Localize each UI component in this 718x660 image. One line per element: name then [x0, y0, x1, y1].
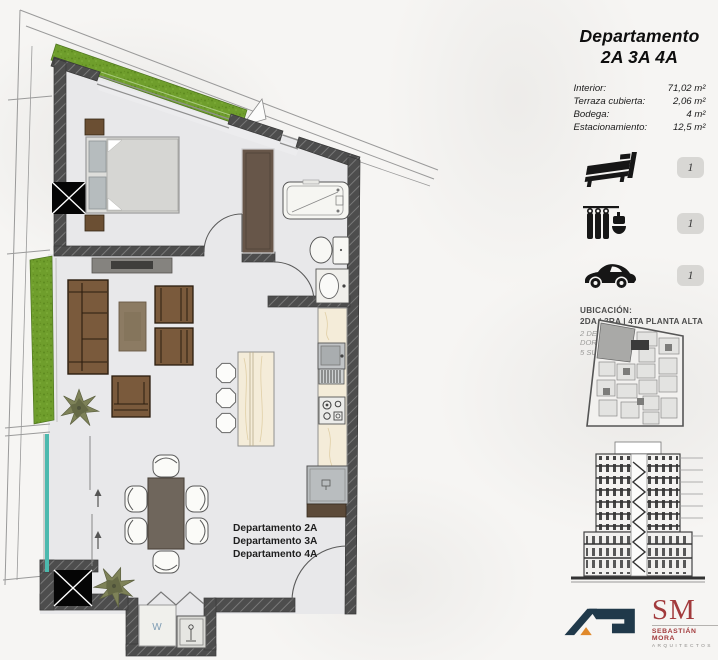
bedroom-count-badge: 1	[677, 157, 704, 178]
bathroom-count-badge: 1	[677, 213, 704, 234]
area-table: Interior: 71,02 m² Terraza cubierta: 2,0…	[574, 82, 706, 134]
kitchen-counter	[318, 308, 347, 470]
column	[54, 570, 92, 606]
sm-logo: SM SEBASTIÁN MORA ARQUITECTOS	[652, 596, 718, 649]
area-row-interior: Interior: 71,02 m²	[574, 82, 706, 95]
window-glass	[45, 434, 49, 572]
sm-monogram: SM	[652, 596, 718, 624]
parking-count-badge: 1	[677, 265, 704, 286]
sm-subtitle: ARQUITECTOS	[652, 644, 718, 649]
dining-table	[148, 478, 184, 549]
page-title: Departamento 2A 3A 4A	[561, 26, 718, 68]
amenities: 1 1	[561, 146, 718, 290]
floor-plan: W Departamento 2A Departamento 3A Depart…	[0, 0, 470, 660]
wardrobe	[242, 149, 274, 253]
area-label: Interior:	[574, 82, 607, 95]
nightstand	[85, 119, 104, 135]
area-label: Bodega:	[574, 108, 610, 121]
info-panel: Departamento 2A 3A 4A Interior: 71,02 m²…	[561, 0, 718, 660]
unit-label-2a: Departamento 2A	[233, 523, 318, 534]
laundry-sink	[177, 616, 206, 648]
area-row-bodega: Bodega: 4 m²	[574, 108, 706, 121]
area-label: Estacionamiento:	[574, 121, 648, 134]
stove	[319, 397, 345, 424]
unit-label-4a: Departamento 4A	[233, 549, 318, 560]
tv-console	[92, 258, 172, 273]
amenity-bathrooms: 1	[581, 202, 704, 244]
washer: W	[139, 605, 176, 646]
armchair	[155, 286, 193, 323]
kitchen-sink	[318, 343, 345, 384]
sofa	[68, 280, 108, 374]
kitchen-island	[238, 352, 274, 446]
area-label: Terraza cubierta:	[574, 95, 646, 108]
bed	[86, 137, 179, 213]
area-value: 71,02 m²	[668, 82, 706, 95]
unit-labels: Departamento 2A Departamento 3A Departam…	[233, 523, 318, 560]
car-icon	[581, 260, 639, 290]
title-line2: 2A 3A 4A	[561, 47, 718, 68]
green-strip-left	[30, 256, 54, 424]
area-value: 4 m²	[686, 108, 705, 121]
area-value: 12,5 m²	[673, 121, 706, 134]
unit-label-3a: Departamento 3A	[233, 536, 318, 547]
sm-name: SEBASTIÁN MORA	[652, 625, 718, 642]
title-line1: Departamento	[561, 26, 718, 47]
shelf	[307, 504, 346, 517]
logos-row: SM SEBASTIÁN MORA ARQUITECTOS	[561, 594, 718, 649]
washer-label: W	[152, 622, 162, 633]
fridge	[307, 466, 348, 504]
elevation-thumbnail	[569, 438, 709, 588]
armchair	[155, 328, 193, 365]
amenity-parking: 1	[581, 260, 704, 290]
shower-icon	[581, 202, 629, 244]
area-row-terraza: Terraza cubierta: 2,06 m²	[574, 95, 706, 108]
area-value: 2,06 m²	[673, 95, 706, 108]
bed-icon	[581, 146, 639, 188]
amenity-bedrooms: 1	[581, 146, 704, 188]
area-row-estacionamiento: Estacionamiento: 12,5 m²	[574, 121, 706, 134]
bathroom-sink	[316, 269, 349, 303]
key-plan-thumbnail	[573, 314, 705, 436]
ag-logo	[561, 594, 642, 648]
nightstand	[85, 215, 104, 231]
column	[52, 182, 86, 214]
coffee-table	[119, 302, 146, 351]
armchair	[112, 376, 150, 417]
bathtub	[283, 180, 349, 219]
highlighted-unit	[597, 323, 635, 362]
brochure-page: W Departamento 2A Departamento 3A Depart…	[0, 0, 718, 660]
